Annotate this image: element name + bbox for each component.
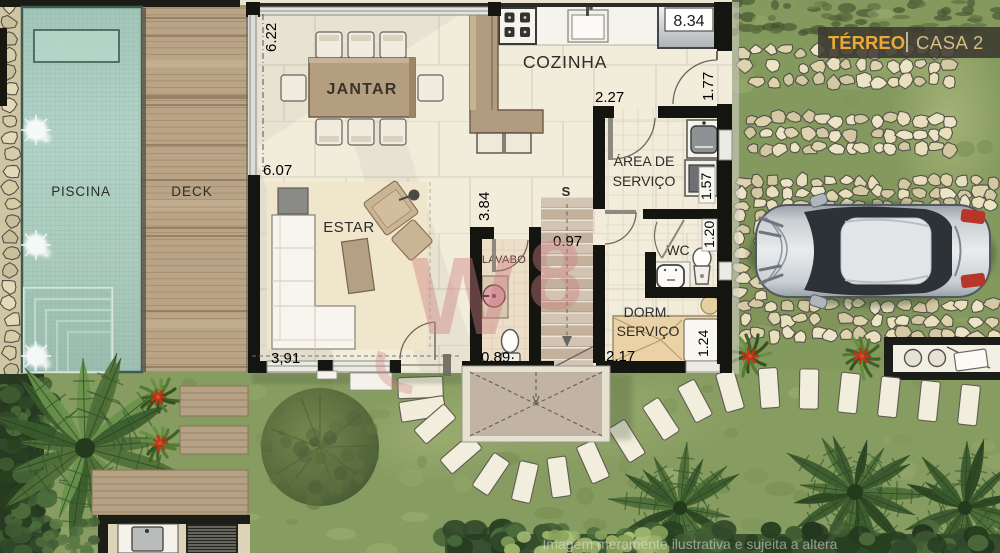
svg-text:DECK: DECK <box>171 184 213 199</box>
svg-text:W: W <box>411 235 515 358</box>
svg-text:1.24: 1.24 <box>695 330 711 357</box>
svg-text:3.84: 3.84 <box>476 192 493 221</box>
svg-text:2.27: 2.27 <box>595 89 624 106</box>
svg-text:6.07: 6.07 <box>263 162 292 179</box>
svg-text:COZINHA: COZINHA <box>523 52 607 72</box>
svg-text:ESTAR: ESTAR <box>323 219 374 236</box>
svg-text:SERVIÇO: SERVIÇO <box>613 173 676 189</box>
svg-text:JANTAR: JANTAR <box>327 81 398 98</box>
svg-text:8.34: 8.34 <box>673 13 704 30</box>
svg-text:S: S <box>562 184 571 199</box>
svg-text:2.17: 2.17 <box>606 348 635 365</box>
svg-text:Imagem meramente ilustrativa e: Imagem meramente ilustrativa e sujeita a… <box>543 536 838 552</box>
svg-text:DORM.: DORM. <box>624 304 671 320</box>
svg-text:8: 8 <box>528 220 583 330</box>
svg-text:3,91: 3,91 <box>271 350 300 367</box>
svg-text:1.77: 1.77 <box>700 72 717 101</box>
svg-text:TÉRREO: TÉRREO <box>828 32 905 53</box>
svg-text:CASA 2: CASA 2 <box>916 32 984 53</box>
svg-text:SERVIÇO: SERVIÇO <box>617 323 680 339</box>
svg-text:ÁREA DE: ÁREA DE <box>614 153 675 169</box>
svg-text:PISCINA: PISCINA <box>51 184 111 199</box>
svg-text:6.22: 6.22 <box>263 23 280 52</box>
svg-text:1.20: 1.20 <box>701 221 717 248</box>
svg-text:1.57: 1.57 <box>698 173 714 200</box>
